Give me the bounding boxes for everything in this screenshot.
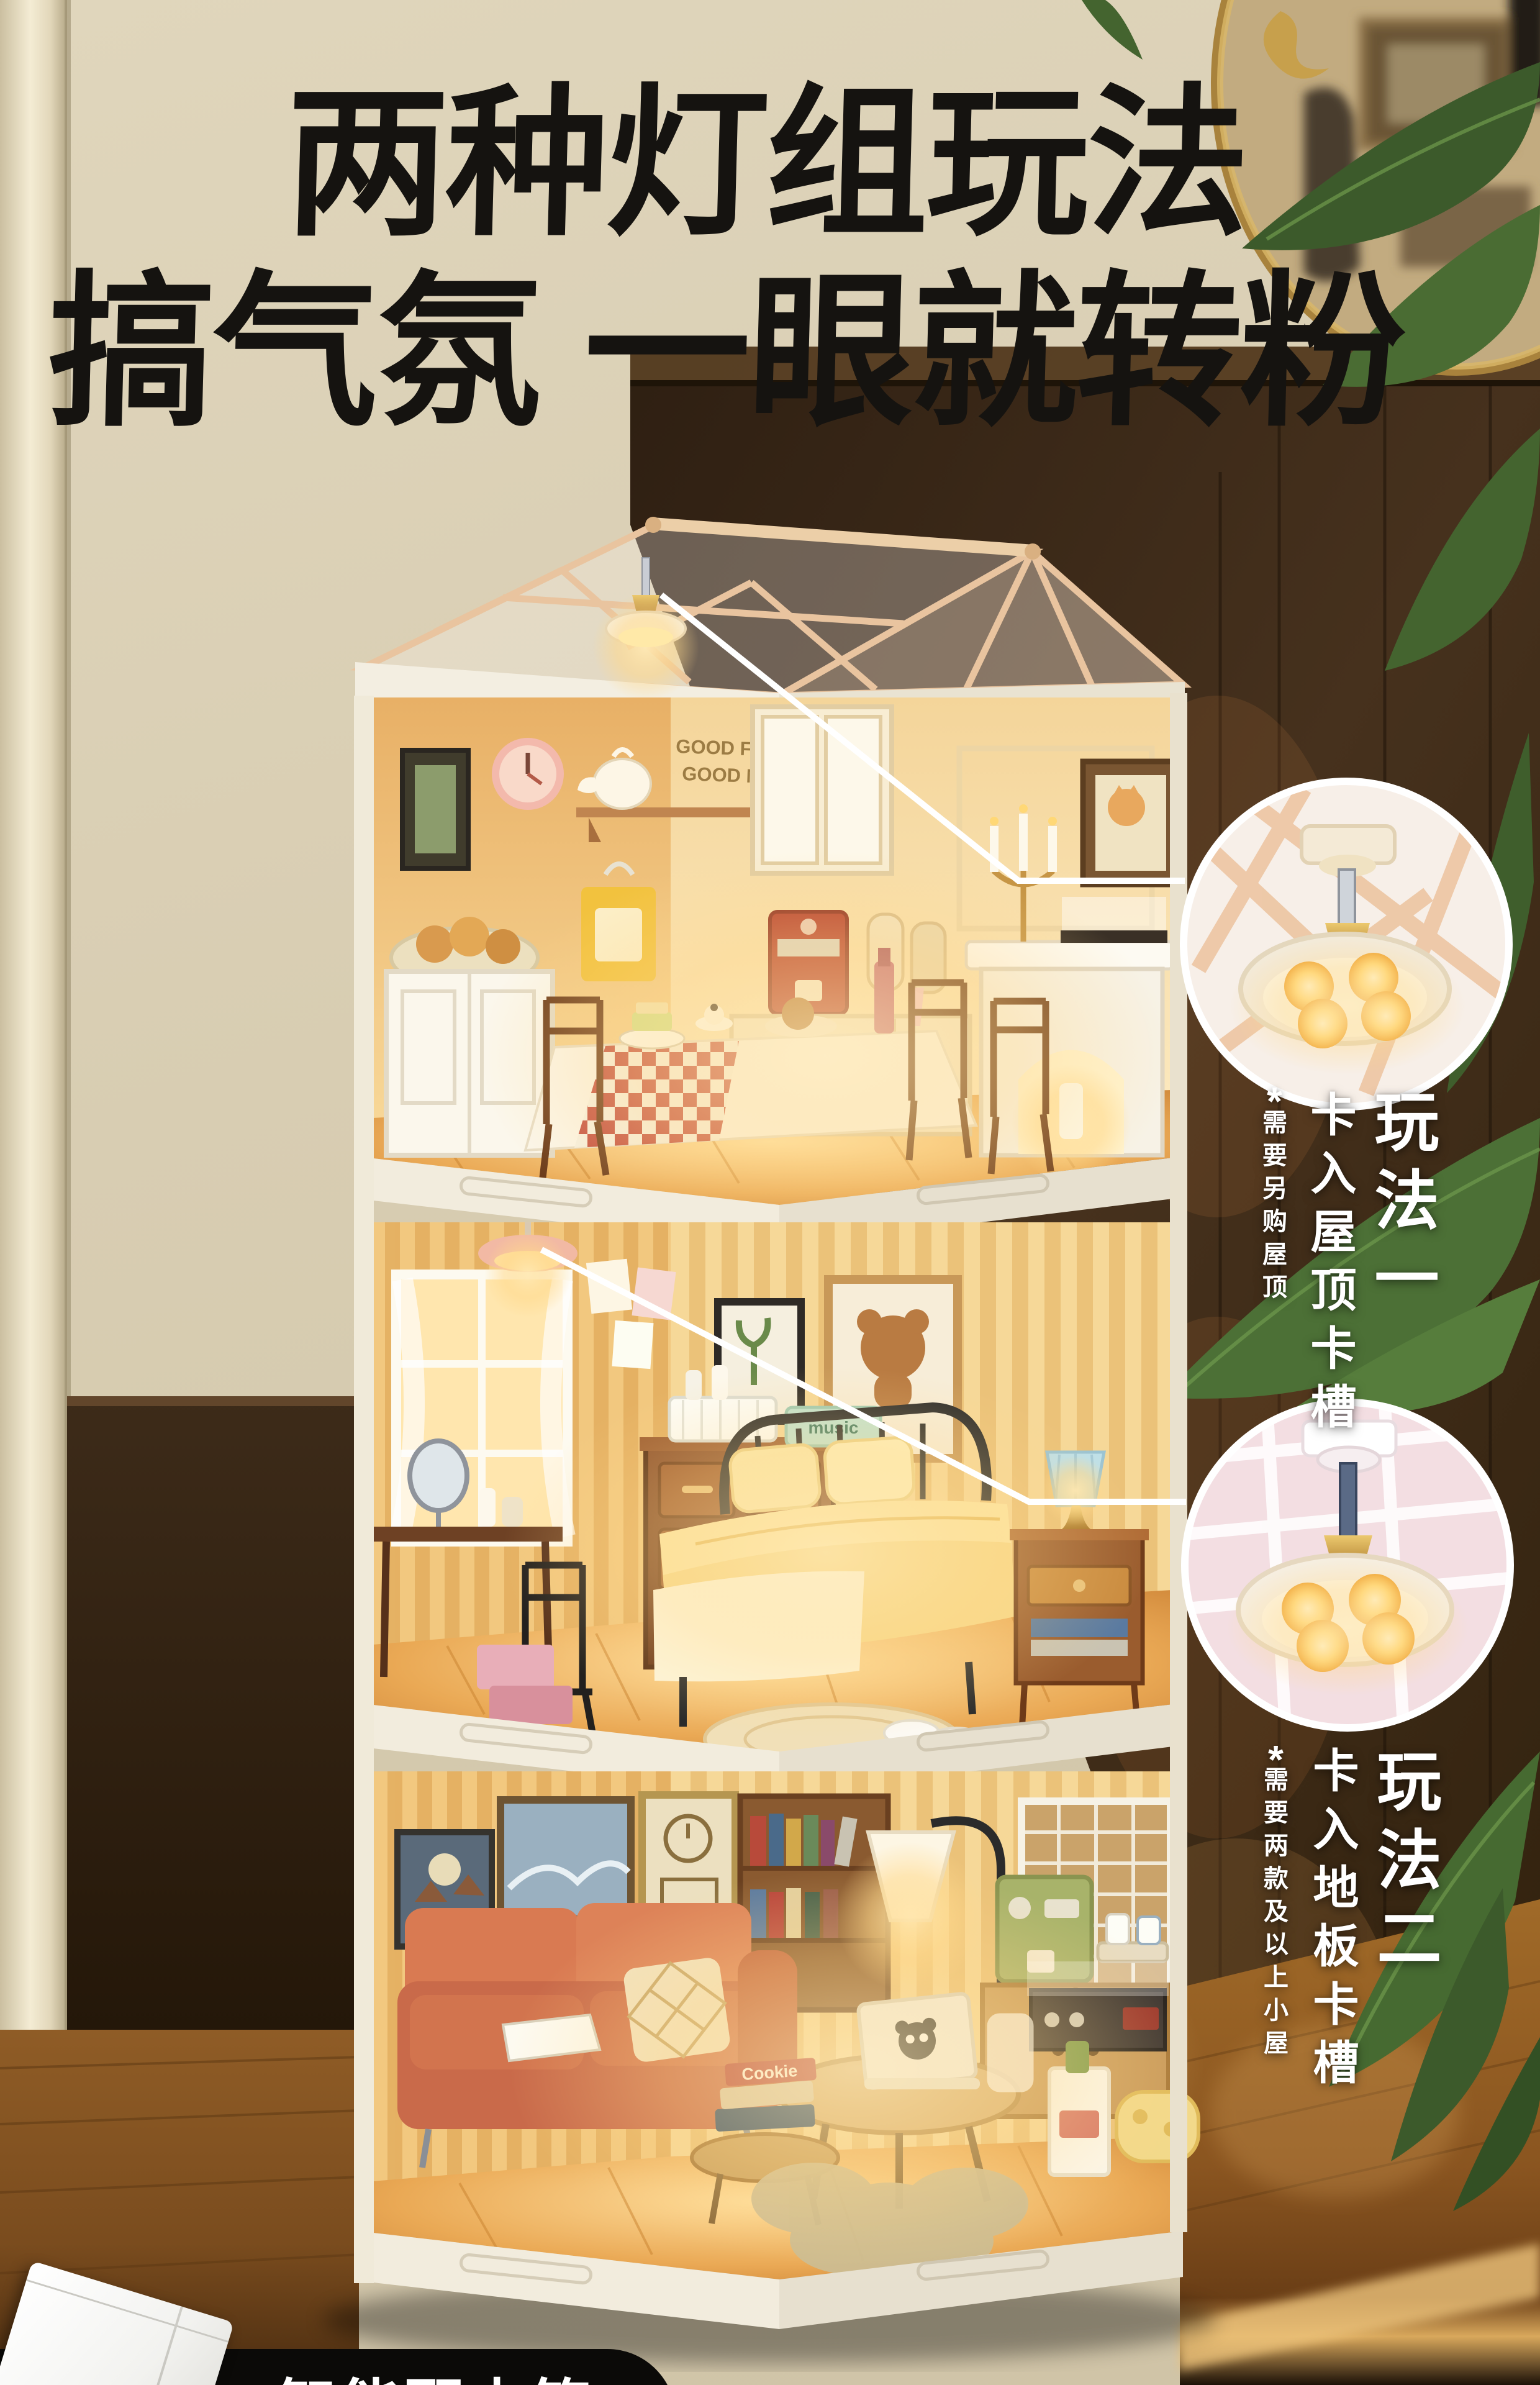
wood-paneling-left <box>67 1396 357 2030</box>
footer-label: 智能配电箱 <box>278 2359 594 2385</box>
method2-heading: 玩法二 <box>1356 1748 1450 1983</box>
headline-line-2: 搞气氛 一眼就转粉 <box>46 266 1406 439</box>
house-left-trim <box>354 696 374 2283</box>
bedroom-room: music <box>306 1222 1183 1774</box>
product-poster: GOOD FOOD GOOD MOOD <box>0 0 1540 2385</box>
callout-circle-roof <box>1184 781 1509 1107</box>
headline-line-1: 两种灯组玩法 <box>283 79 1249 248</box>
callout-circle-floor <box>1185 1402 1515 1728</box>
method2-subheading: 卡入地板卡槽 <box>1299 1747 1366 2097</box>
dollhouse: GOOD FOOD GOOD MOOD <box>306 517 1205 2329</box>
method1-note: 需要另购屋顶 <box>1254 1109 1290 1307</box>
method1-heading: 玩法一 <box>1354 1088 1447 1323</box>
method2-note: 需要两款及以上小屋 <box>1256 1766 1292 2063</box>
living-room: Cookie <box>357 1771 1205 2279</box>
method1-subheading: 卡入屋顶卡槽 <box>1297 1091 1363 1441</box>
